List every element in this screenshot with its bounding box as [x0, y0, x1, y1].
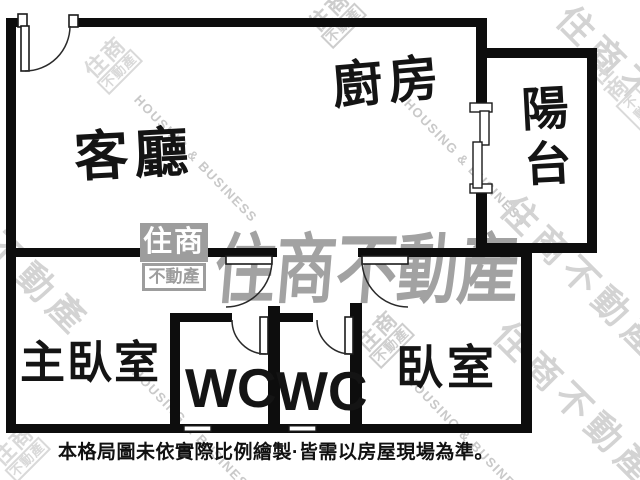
wall-top	[71, 18, 487, 27]
entry-door-leaf	[21, 26, 29, 71]
brand-logo-secondary: 不動產	[142, 263, 206, 291]
room-label-wc2: WC	[276, 359, 368, 423]
brand-logo-primary: 住商	[140, 223, 208, 262]
room-label-bedroom: 臥室	[396, 329, 498, 398]
room-label-kitchen: 廚房	[329, 37, 447, 118]
wc1-door-leaf	[260, 317, 268, 354]
wall-bottom	[6, 424, 532, 433]
entry-door-arc	[25, 26, 70, 71]
room-label-master-bedroom: 主臥室	[20, 326, 161, 391]
sliding-door-panel-1	[480, 111, 489, 145]
entry-door-jamb-left	[18, 14, 27, 27]
disclaimer-text: 本格局圖未依實際比例繪製·皆需以房屋現場為準。	[58, 437, 494, 464]
room-label-wc1: WC	[185, 356, 277, 420]
floor-plan-canvas: 住商不動產 HOUSING & BUSINESS HOUSING & BUSIN…	[0, 0, 640, 480]
wall-kitchen-balcony-upper	[476, 18, 487, 105]
wall-left	[6, 18, 16, 433]
wall-wc1-left	[170, 313, 180, 424]
wall-wc1-top	[170, 313, 232, 322]
entry-door-jamb-right	[69, 15, 78, 27]
hall-door-left-leaf	[226, 256, 272, 264]
hall-door-right-arc	[362, 260, 408, 307]
wall-balcony-right	[587, 48, 597, 253]
wall-wc2-top	[280, 313, 313, 322]
sliding-door-panel-2	[473, 142, 482, 188]
wall-right-bedroom	[521, 248, 532, 433]
window-bottom-wc2	[289, 426, 316, 431]
wall-balcony-top	[485, 48, 597, 58]
room-label-balcony: 陽台	[505, 82, 580, 195]
hall-door-left-arc	[226, 260, 272, 307]
wc2-door-leaf	[345, 317, 353, 354]
room-label-living-room: 客廳	[72, 107, 196, 192]
window-bottom-wc1	[184, 426, 211, 431]
hall-door-right-leaf	[362, 256, 408, 264]
brand-logo-stamp: 住商 不動產	[140, 223, 208, 291]
